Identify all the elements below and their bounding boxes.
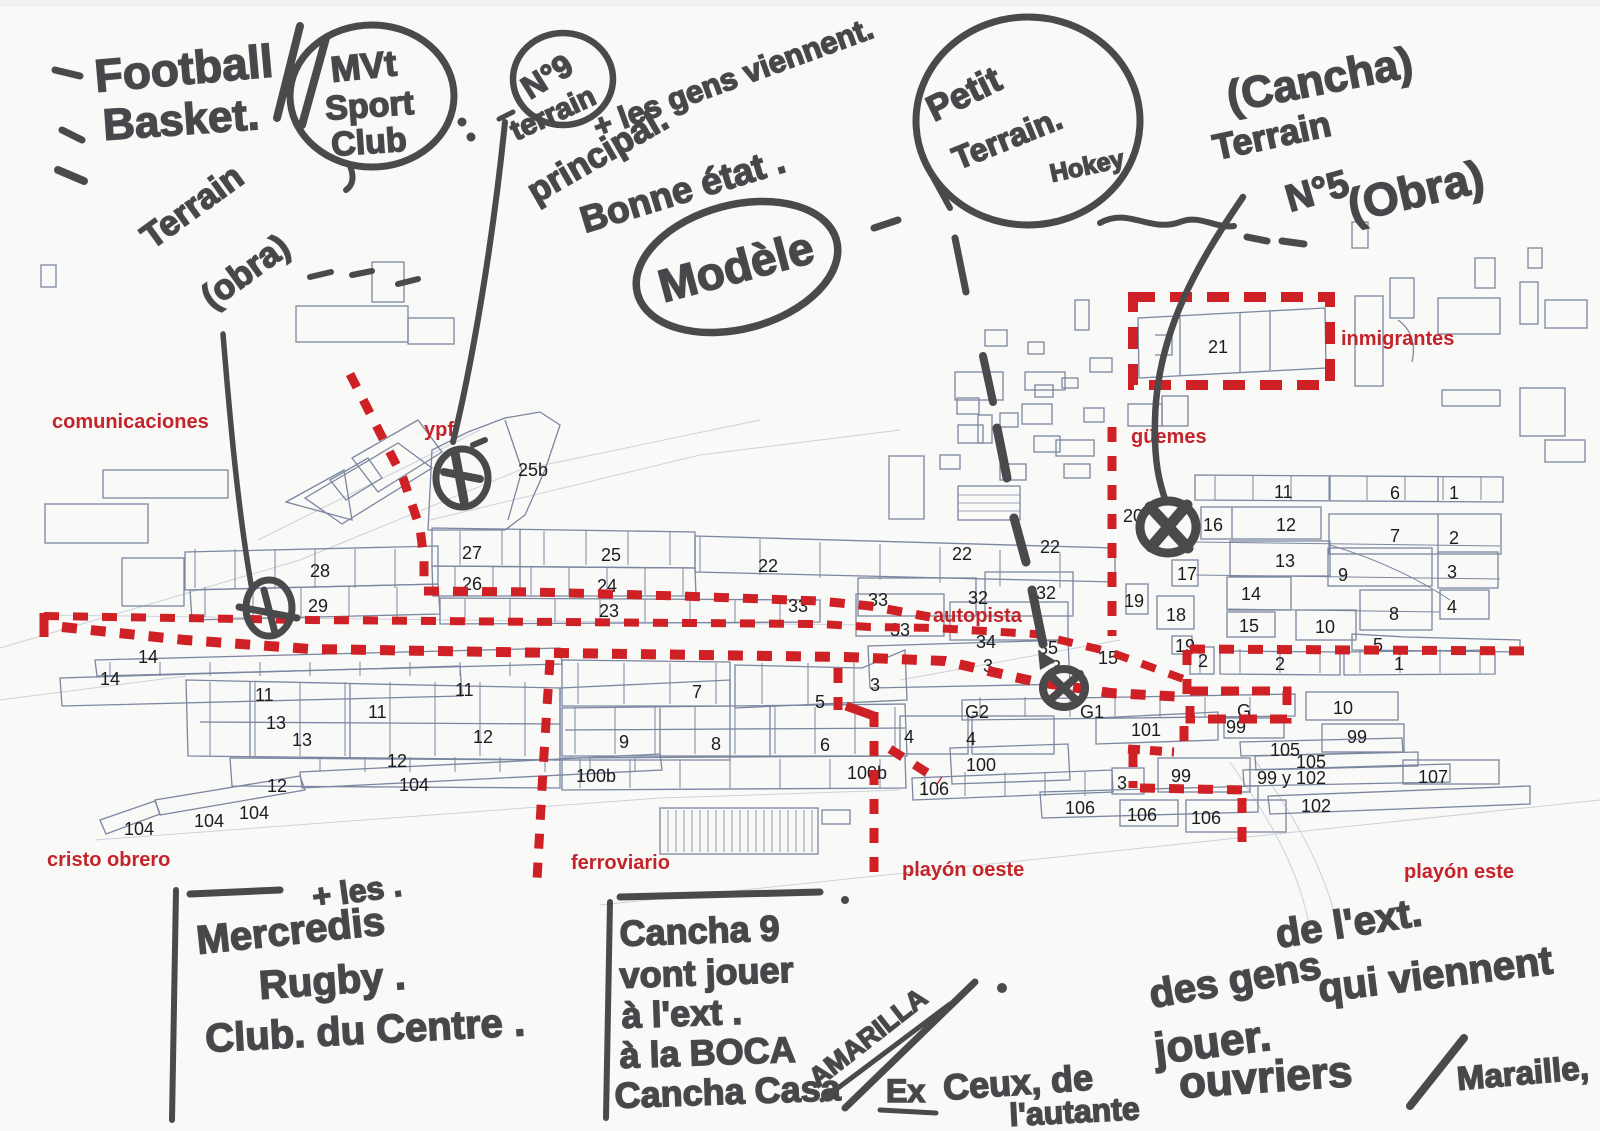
svg-text:3: 3: [1117, 773, 1127, 793]
svg-text:21: 21: [1208, 337, 1228, 357]
svg-text:28: 28: [310, 561, 330, 581]
svg-text:1: 1: [1449, 483, 1459, 503]
svg-text:104: 104: [239, 803, 269, 823]
svg-text:7: 7: [1390, 526, 1400, 546]
svg-text:15: 15: [1239, 616, 1259, 636]
svg-text:Cancha 9: Cancha 9: [619, 907, 780, 954]
svg-text:22: 22: [758, 556, 778, 576]
svg-text:107: 107: [1418, 767, 1448, 787]
svg-text:comunicaciones: comunicaciones: [52, 411, 209, 433]
svg-text:1: 1: [1394, 654, 1404, 674]
svg-text:29: 29: [308, 596, 328, 616]
svg-text:playón este: playón este: [1404, 861, 1514, 883]
svg-text:inmigrantes: inmigrantes: [1341, 328, 1454, 350]
svg-text:4: 4: [966, 729, 976, 749]
svg-text:17: 17: [1177, 564, 1197, 584]
svg-text:3: 3: [870, 675, 880, 695]
svg-text:11: 11: [455, 680, 474, 700]
svg-text:8: 8: [711, 734, 721, 754]
svg-text:MVt: MVt: [329, 42, 399, 90]
svg-text:104: 104: [124, 819, 154, 839]
svg-text:104: 104: [399, 775, 429, 795]
svg-text:11: 11: [255, 685, 274, 705]
svg-text:12: 12: [473, 727, 493, 747]
svg-text:vont jouer: vont jouer: [619, 949, 794, 996]
svg-text:playón oeste: playón oeste: [902, 859, 1024, 881]
svg-text:14: 14: [138, 647, 158, 667]
svg-text:13: 13: [1275, 551, 1295, 571]
svg-text:l'autante: l'autante: [1008, 1090, 1140, 1131]
svg-text:100: 100: [966, 755, 996, 775]
svg-text:6: 6: [1390, 483, 1400, 503]
svg-text:101: 101: [1131, 720, 1161, 740]
svg-text:99: 99: [1171, 766, 1191, 786]
svg-text:G1: G1: [1080, 702, 1104, 722]
svg-text:à l'ext .: à l'ext .: [621, 991, 743, 1036]
svg-text:106: 106: [1065, 798, 1095, 818]
svg-text:10: 10: [1333, 698, 1353, 718]
svg-text:Ex: Ex: [886, 1073, 925, 1109]
svg-text:16: 16: [1203, 515, 1223, 535]
svg-text:14: 14: [1241, 584, 1261, 604]
svg-text:14: 14: [100, 669, 120, 689]
svg-text:güemes: güemes: [1131, 426, 1207, 448]
svg-text:8: 8: [1389, 604, 1399, 624]
svg-text:11: 11: [368, 702, 387, 722]
svg-text:27: 27: [462, 543, 482, 563]
svg-text:ferroviario: ferroviario: [571, 852, 670, 874]
svg-text:19: 19: [1124, 591, 1144, 611]
svg-text:5: 5: [815, 692, 825, 712]
svg-text:100b: 100b: [847, 763, 887, 783]
svg-text:10: 10: [1315, 617, 1335, 637]
svg-text:106: 106: [919, 779, 949, 799]
svg-text:7: 7: [692, 682, 702, 702]
svg-text:11: 11: [1274, 482, 1293, 502]
svg-text:2: 2: [1449, 528, 1459, 548]
svg-text:12: 12: [387, 751, 407, 771]
svg-text:2: 2: [1275, 654, 1285, 674]
svg-text:100b: 100b: [576, 766, 616, 786]
svg-text:autopista: autopista: [933, 605, 1023, 627]
svg-text:4: 4: [1447, 597, 1457, 617]
svg-text:G2: G2: [965, 702, 989, 722]
svg-text:104: 104: [194, 811, 224, 831]
svg-text:ypf: ypf: [424, 419, 454, 441]
svg-text:102: 102: [1301, 796, 1331, 816]
svg-text:106: 106: [1191, 808, 1221, 828]
svg-text:22: 22: [1040, 537, 1060, 557]
svg-text:12: 12: [267, 776, 287, 796]
svg-text:23: 23: [599, 601, 619, 621]
svg-text:cristo obrero: cristo obrero: [47, 849, 170, 871]
svg-text:9: 9: [1338, 565, 1348, 585]
svg-text:18: 18: [1166, 605, 1186, 625]
svg-text:13: 13: [266, 713, 286, 733]
svg-text:25b: 25b: [518, 460, 548, 480]
svg-text:32: 32: [1036, 583, 1056, 603]
svg-text:9: 9: [619, 732, 629, 752]
svg-text:25: 25: [601, 545, 621, 565]
svg-text:6: 6: [820, 735, 830, 755]
svg-text:13: 13: [292, 730, 312, 750]
svg-text:12: 12: [1276, 515, 1296, 535]
svg-text:3: 3: [1447, 562, 1457, 582]
svg-text:2: 2: [1198, 651, 1208, 671]
svg-text:106: 106: [1127, 805, 1157, 825]
svg-text:99: 99: [1347, 727, 1367, 747]
svg-text:Club: Club: [330, 121, 408, 164]
svg-text:22: 22: [952, 544, 972, 564]
svg-text:99 y 102: 99 y 102: [1257, 768, 1326, 788]
svg-text:4: 4: [904, 727, 914, 747]
